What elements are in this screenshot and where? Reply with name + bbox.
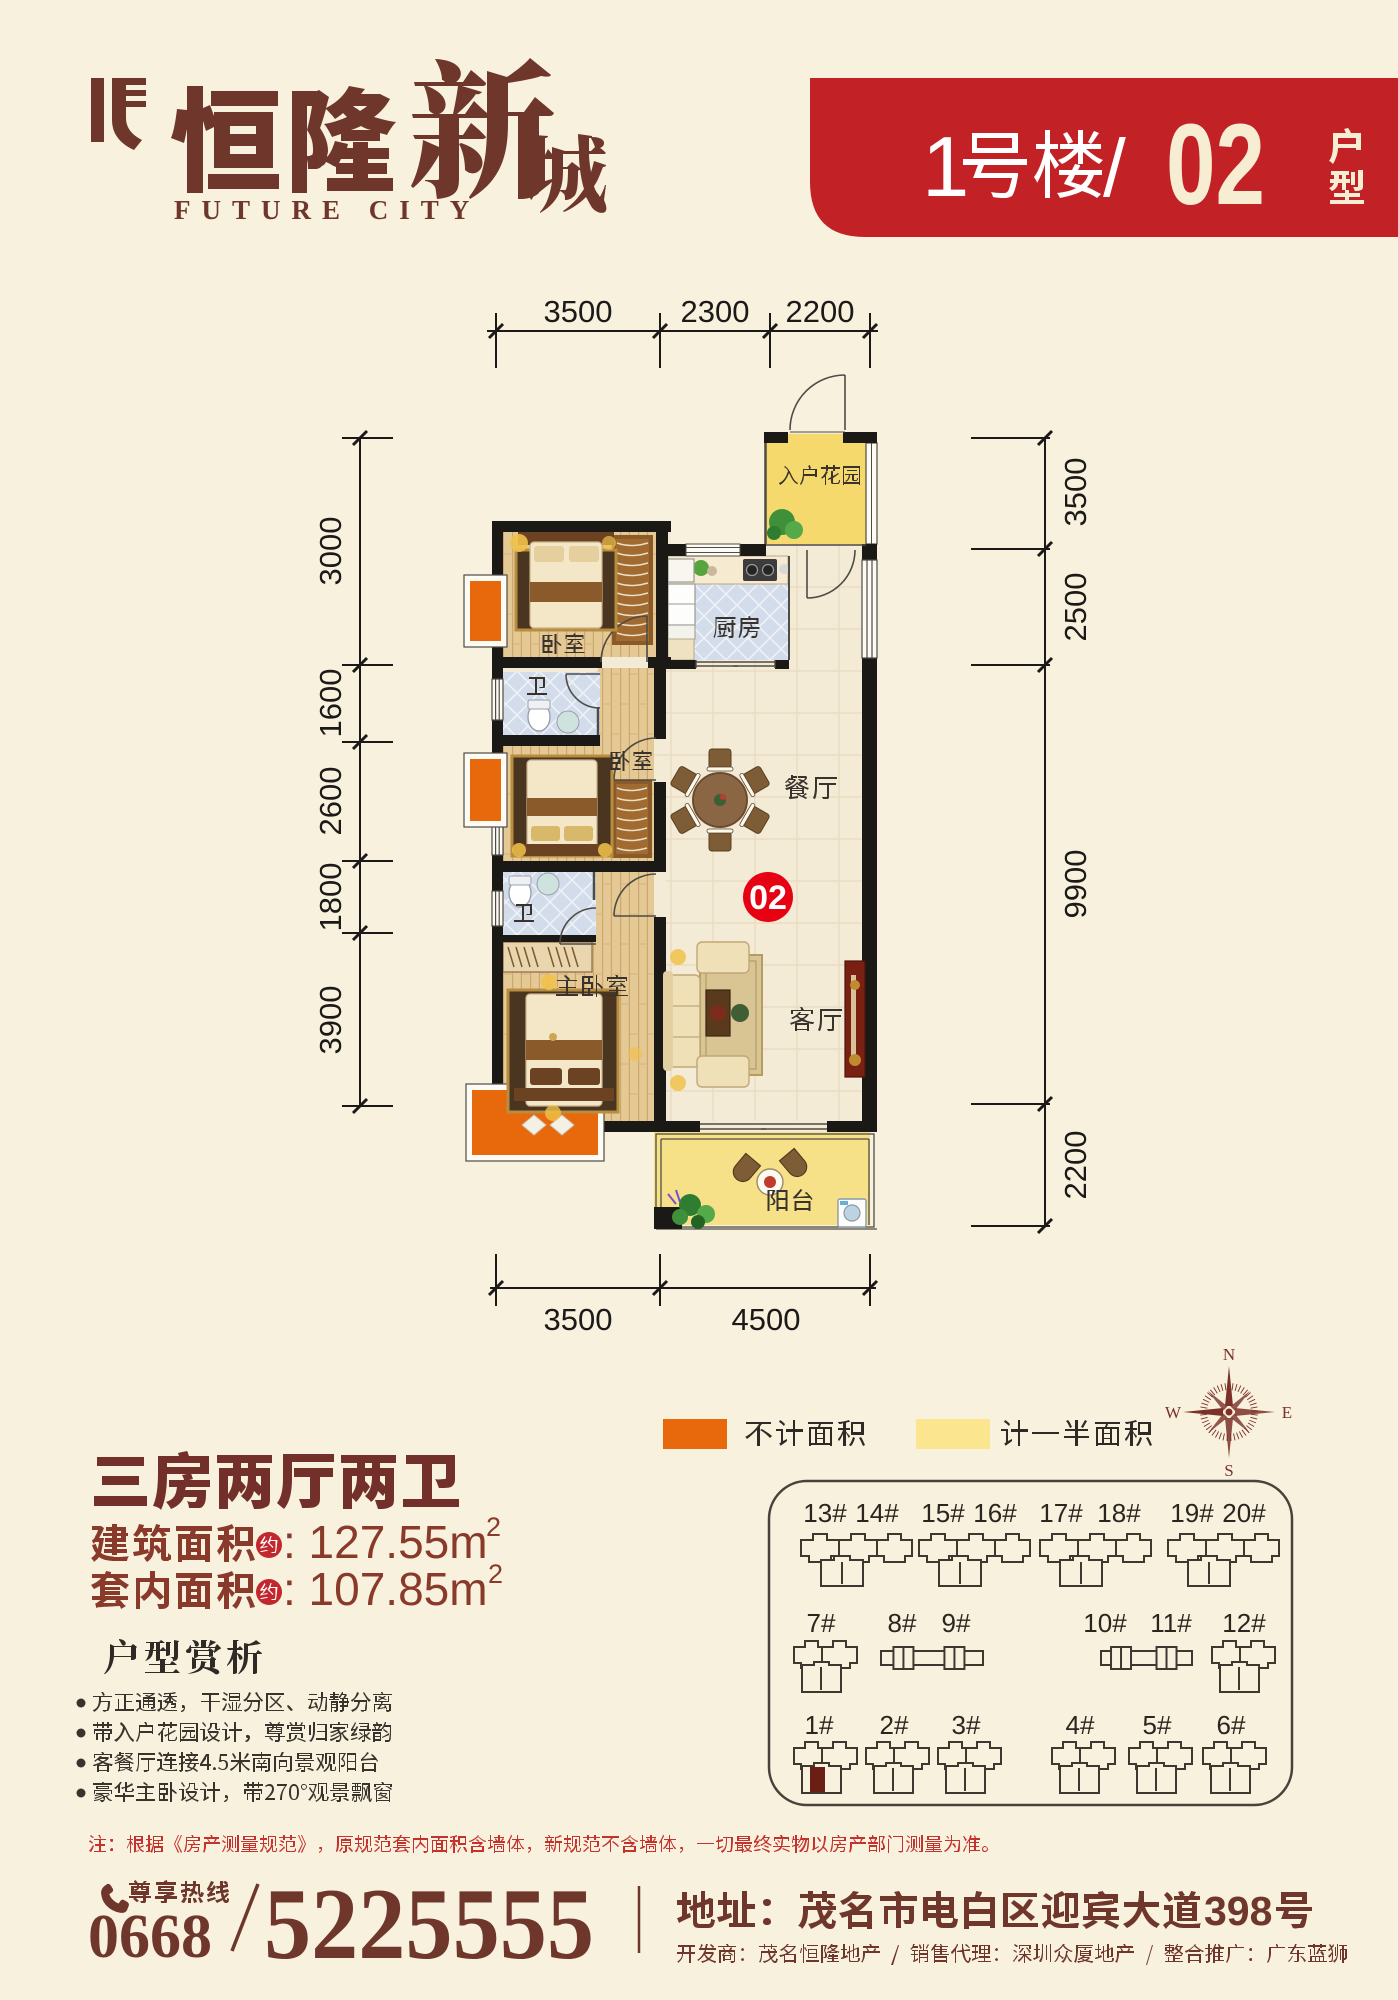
- svg-text:: 127.55m: : 127.55m: [283, 1516, 488, 1568]
- svg-text:FUTURE CITY: FUTURE CITY: [174, 195, 480, 225]
- svg-text:14#: 14#: [855, 1498, 899, 1528]
- svg-text:13#: 13#: [803, 1498, 847, 1528]
- svg-text:02: 02: [1166, 101, 1265, 229]
- svg-text:12#: 12#: [1222, 1608, 1266, 1638]
- svg-text:1#: 1#: [805, 1710, 834, 1740]
- svg-text:3#: 3#: [952, 1710, 981, 1740]
- svg-text:W: W: [1165, 1403, 1182, 1422]
- svg-text:N: N: [1223, 1345, 1235, 1364]
- svg-text:0668: 0668: [88, 1903, 212, 1971]
- svg-text:2: 2: [488, 1559, 503, 1589]
- svg-text:2200: 2200: [786, 294, 855, 329]
- svg-text:6#: 6#: [1217, 1710, 1246, 1740]
- svg-text:02: 02: [749, 879, 787, 917]
- svg-text:3500: 3500: [544, 1302, 613, 1337]
- svg-text:1: 1: [922, 120, 969, 215]
- svg-text:16#: 16#: [973, 1498, 1017, 1528]
- svg-text:398: 398: [1204, 1888, 1272, 1934]
- svg-text:1600: 1600: [313, 669, 348, 738]
- svg-text:3900: 3900: [313, 986, 348, 1055]
- svg-text:15#: 15#: [921, 1498, 965, 1528]
- svg-text:5#: 5#: [1143, 1710, 1172, 1740]
- svg-text:2200: 2200: [1058, 1131, 1093, 1200]
- svg-text:2600: 2600: [313, 767, 348, 836]
- svg-text:10#: 10#: [1083, 1608, 1127, 1638]
- svg-text:/: /: [1103, 123, 1126, 214]
- svg-text:2500: 2500: [1058, 573, 1093, 642]
- svg-text:18#: 18#: [1097, 1498, 1141, 1528]
- svg-text:2: 2: [486, 1512, 501, 1542]
- svg-text:3000: 3000: [313, 517, 348, 586]
- svg-text:2300: 2300: [681, 294, 750, 329]
- svg-text:3500: 3500: [1058, 458, 1093, 527]
- svg-text:20#: 20#: [1222, 1498, 1266, 1528]
- svg-text:1800: 1800: [313, 863, 348, 932]
- svg-text:9#: 9#: [942, 1608, 971, 1638]
- svg-text:3500: 3500: [544, 294, 613, 329]
- svg-text:2#: 2#: [880, 1710, 909, 1740]
- svg-text:4#: 4#: [1066, 1710, 1095, 1740]
- svg-text:: 107.85m: : 107.85m: [283, 1563, 488, 1615]
- svg-text:9900: 9900: [1058, 850, 1093, 919]
- svg-text:17#: 17#: [1039, 1498, 1083, 1528]
- svg-text:S: S: [1224, 1461, 1233, 1480]
- svg-text:E: E: [1282, 1403, 1292, 1422]
- svg-text:8#: 8#: [888, 1608, 917, 1638]
- svg-text:19#: 19#: [1170, 1498, 1214, 1528]
- svg-text:11#: 11#: [1150, 1608, 1192, 1638]
- svg-text:5225555: 5225555: [264, 1868, 594, 1981]
- svg-text:4500: 4500: [732, 1302, 801, 1337]
- svg-text:7#: 7#: [807, 1608, 836, 1638]
